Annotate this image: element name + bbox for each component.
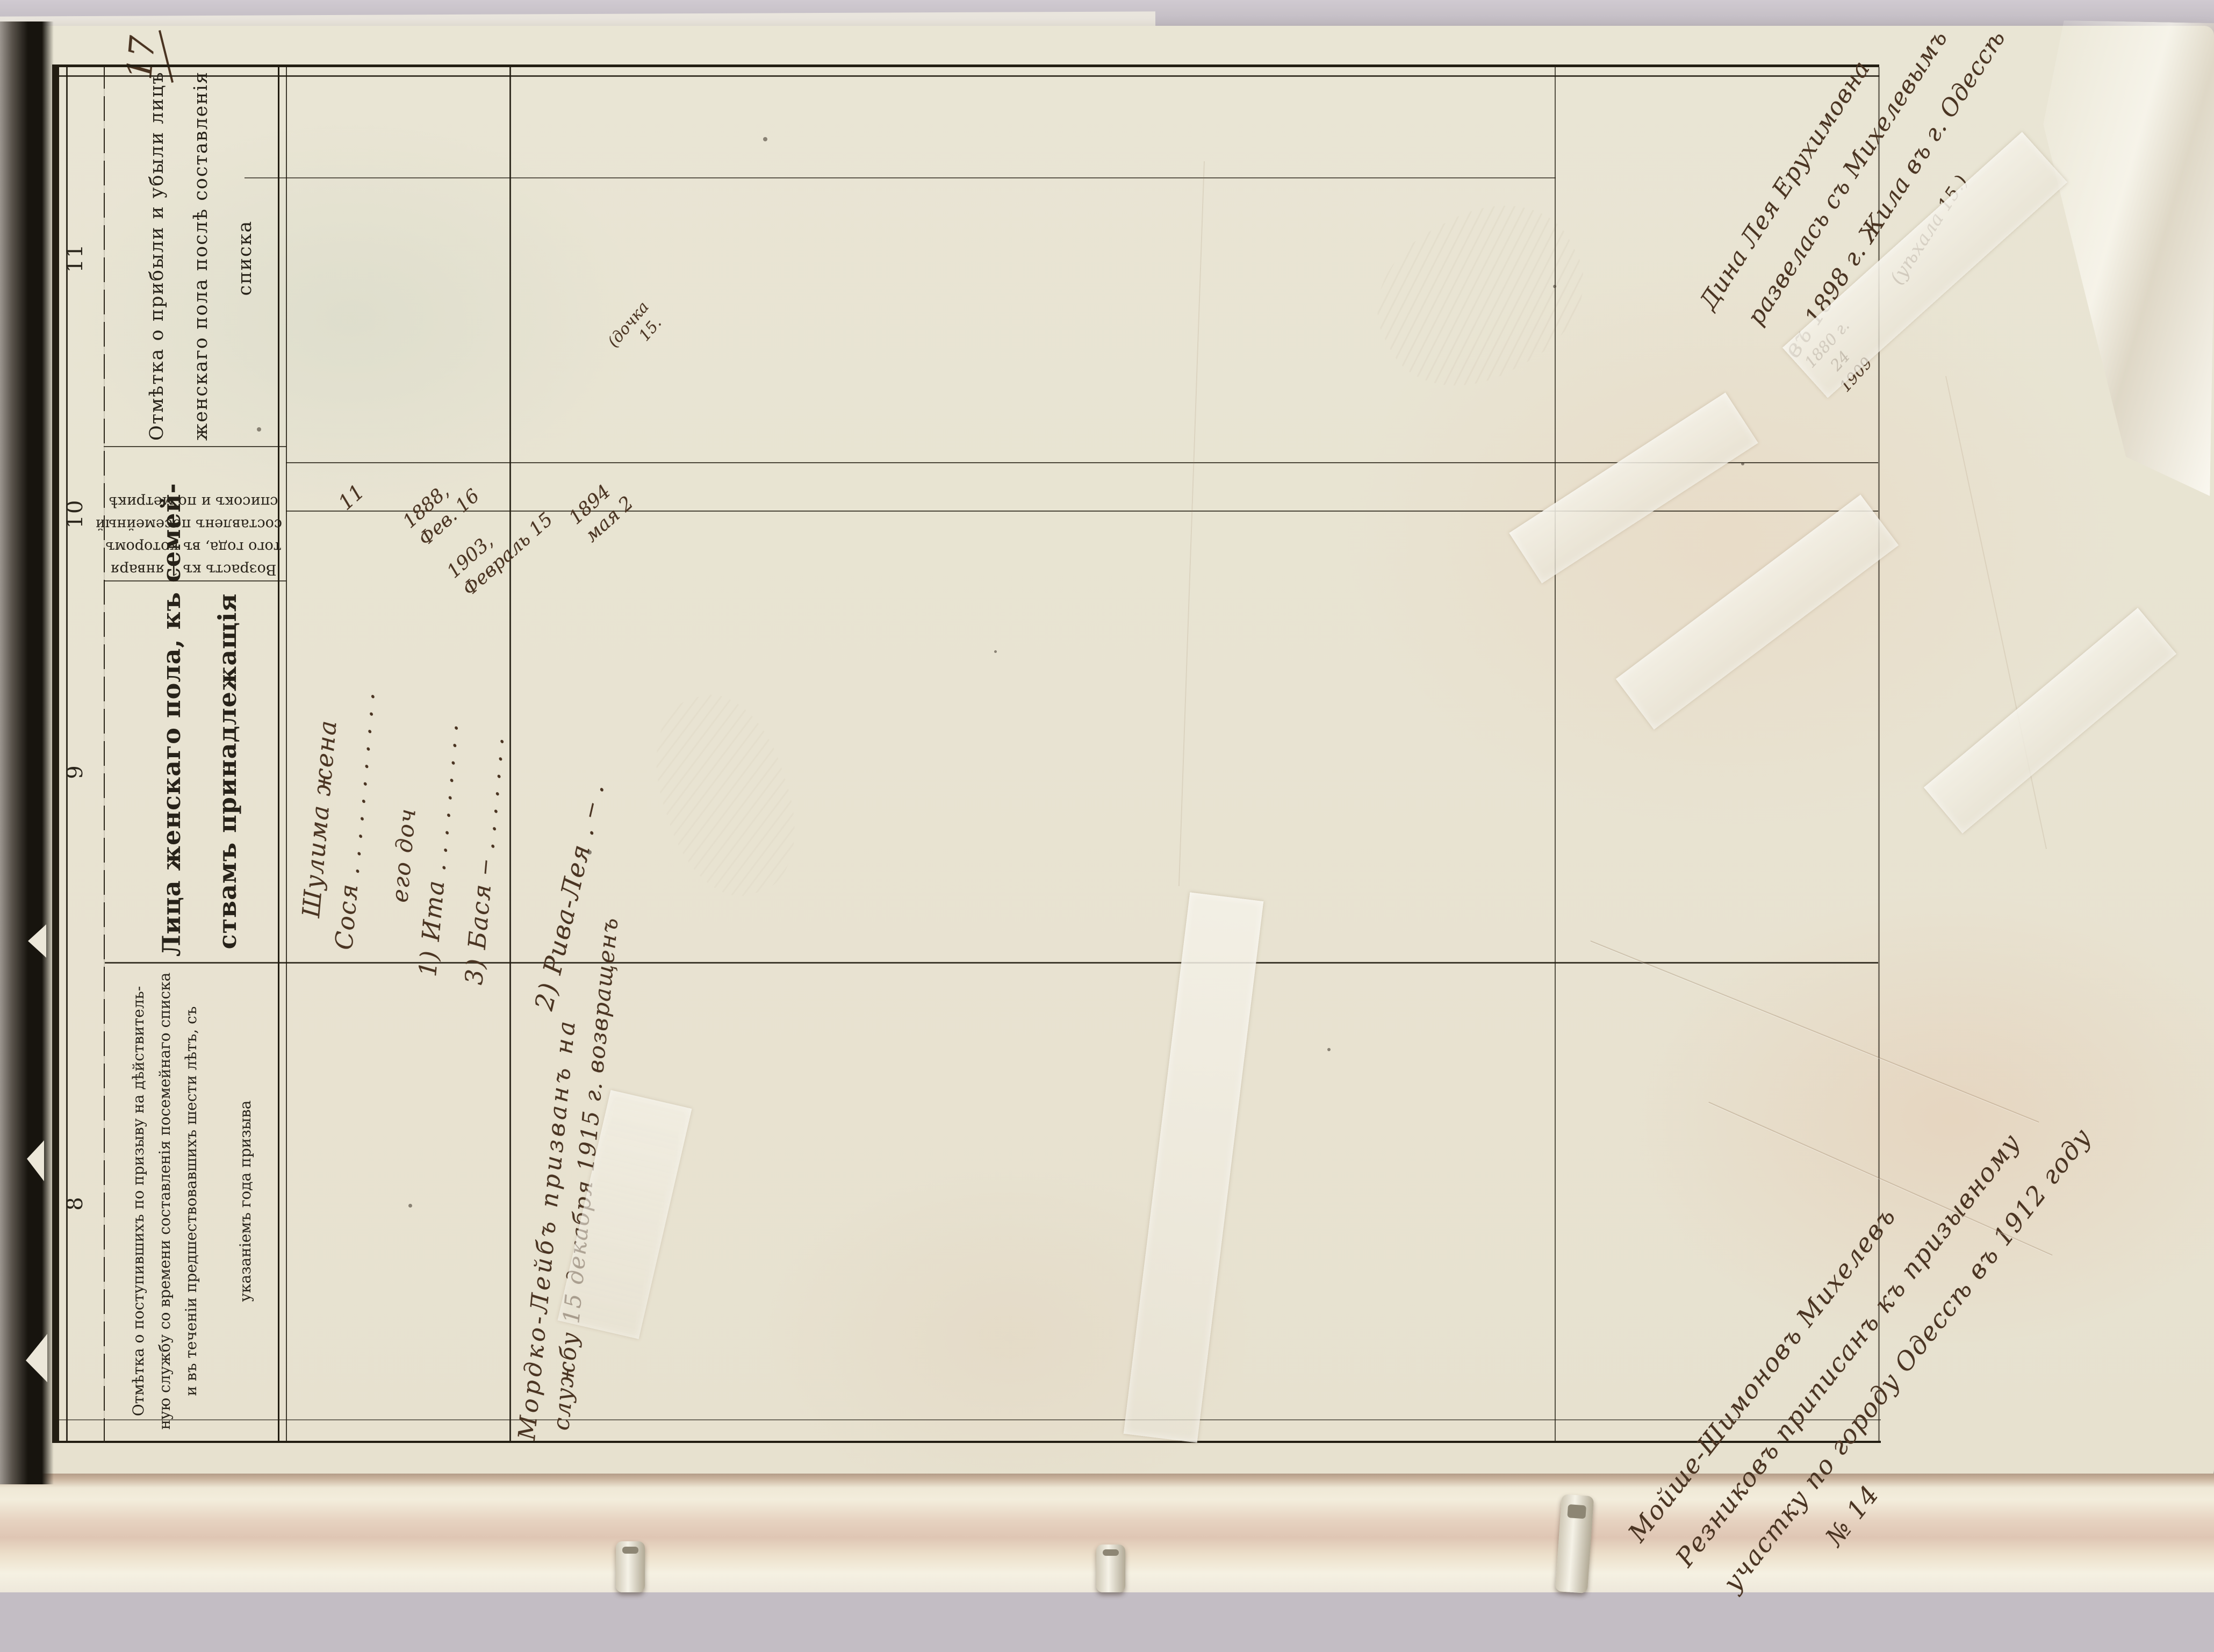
table-frame-top: [52, 66, 59, 1443]
header-line: списокъ и по метрикѣ: [105, 490, 282, 513]
number-row-line: [104, 67, 105, 1443]
header-line: указаніемъ года призыва: [232, 965, 258, 1438]
header-bottom-line-inner: [286, 67, 287, 1443]
table-frame-left-inner: [52, 1419, 1881, 1420]
column-number-9: 9: [63, 581, 88, 962]
entry-bottom-signature: Мойше-Шимоновъ Михелевъ Резниковъ припис…: [1614, 1051, 2148, 1652]
ink-speck: [257, 427, 261, 432]
table-frame-right-inner: [52, 75, 1879, 77]
header-line: Лица женскаго пола, къ семей-: [143, 586, 199, 957]
entry-note-dochka: (дочка 15.: [603, 298, 668, 364]
binding-post-slot: [1103, 1549, 1119, 1556]
ink-speck: [994, 650, 997, 653]
header-line: составленъ посемейный: [105, 513, 282, 535]
vertical-header-text: Возрастъ къ 1 января того года, въ котор…: [105, 446, 282, 580]
document-content: 17 8 9 10 11 Отмѣтка о поступившихъ по п…: [30, 35, 2184, 1567]
entry-age-wife: 11: [334, 480, 369, 515]
column-line-8-9: [105, 962, 1878, 964]
binding-post: [1096, 1545, 1125, 1592]
entry-daughter-ita: 1) Ита . . . . . . . . .: [413, 721, 464, 978]
column-number-8: 8: [63, 964, 88, 1443]
header-line: Возрастъ къ 1 января: [105, 558, 282, 580]
column-line-11: [245, 177, 1556, 178]
ink-speck: [408, 1204, 412, 1208]
header-line: и въ теченіи предшествовавшихъ шести лѣт…: [178, 965, 204, 1438]
column-number-10: 10: [63, 447, 88, 580]
column-header-9: Лица женскаго пола, къ семей- ствамъ при…: [143, 586, 255, 957]
archival-photo-scene: 17 8 9 10 11 Отмѣтка о поступившихъ по п…: [0, 0, 2214, 1592]
entry-daughters-label: его доч: [386, 807, 421, 903]
binding-post: [616, 1541, 645, 1592]
header-cell-line-9-10: [104, 580, 286, 581]
ink-speck: [1553, 285, 1556, 288]
binding-post-slot: [622, 1547, 638, 1554]
column-header-11: Отмѣтка о прибыли и убыли лицъ женскаго …: [135, 75, 267, 441]
table-frame-right-outer: [52, 64, 1879, 67]
row-line-1: [509, 67, 511, 1443]
header-line: списка: [223, 75, 267, 441]
entry-birth-ita: 1888, Фев. 16: [398, 466, 485, 551]
entry-birth-riva: 1894 мая 2: [564, 474, 638, 548]
header-line: ствамъ принадлежащія: [199, 586, 255, 957]
ink-speck: [1327, 1048, 1331, 1051]
binding-post-slot: [1568, 1504, 1586, 1519]
header-line: Отмѣтка о поступившихъ по призыву на дѣй…: [125, 965, 152, 1438]
entry-daughter-basya: 3) Бася ‒ . . . . . . .: [459, 735, 509, 986]
column-header-8: Отмѣтка о поступившихъ по призыву на дѣй…: [125, 965, 258, 1438]
ink-speck: [763, 137, 767, 141]
binding-post: [1555, 1494, 1594, 1593]
header-line: ную службу со времени составленія посеме…: [152, 965, 178, 1438]
column-number-11: 11: [63, 70, 88, 446]
header-line: женскаго пола послѣ составленія: [179, 75, 223, 441]
column-header-10: Возрастъ къ 1 января того года, въ котор…: [105, 446, 282, 580]
table-frame-left: [52, 1441, 1881, 1443]
header-line: того года, въ которомъ: [105, 535, 282, 558]
header-line: Отмѣтка о прибыли и убыли лицъ: [135, 75, 179, 441]
ink-speck: [587, 850, 592, 854]
ink-speck: [1741, 462, 1744, 465]
header-bottom-line: [278, 67, 279, 1443]
